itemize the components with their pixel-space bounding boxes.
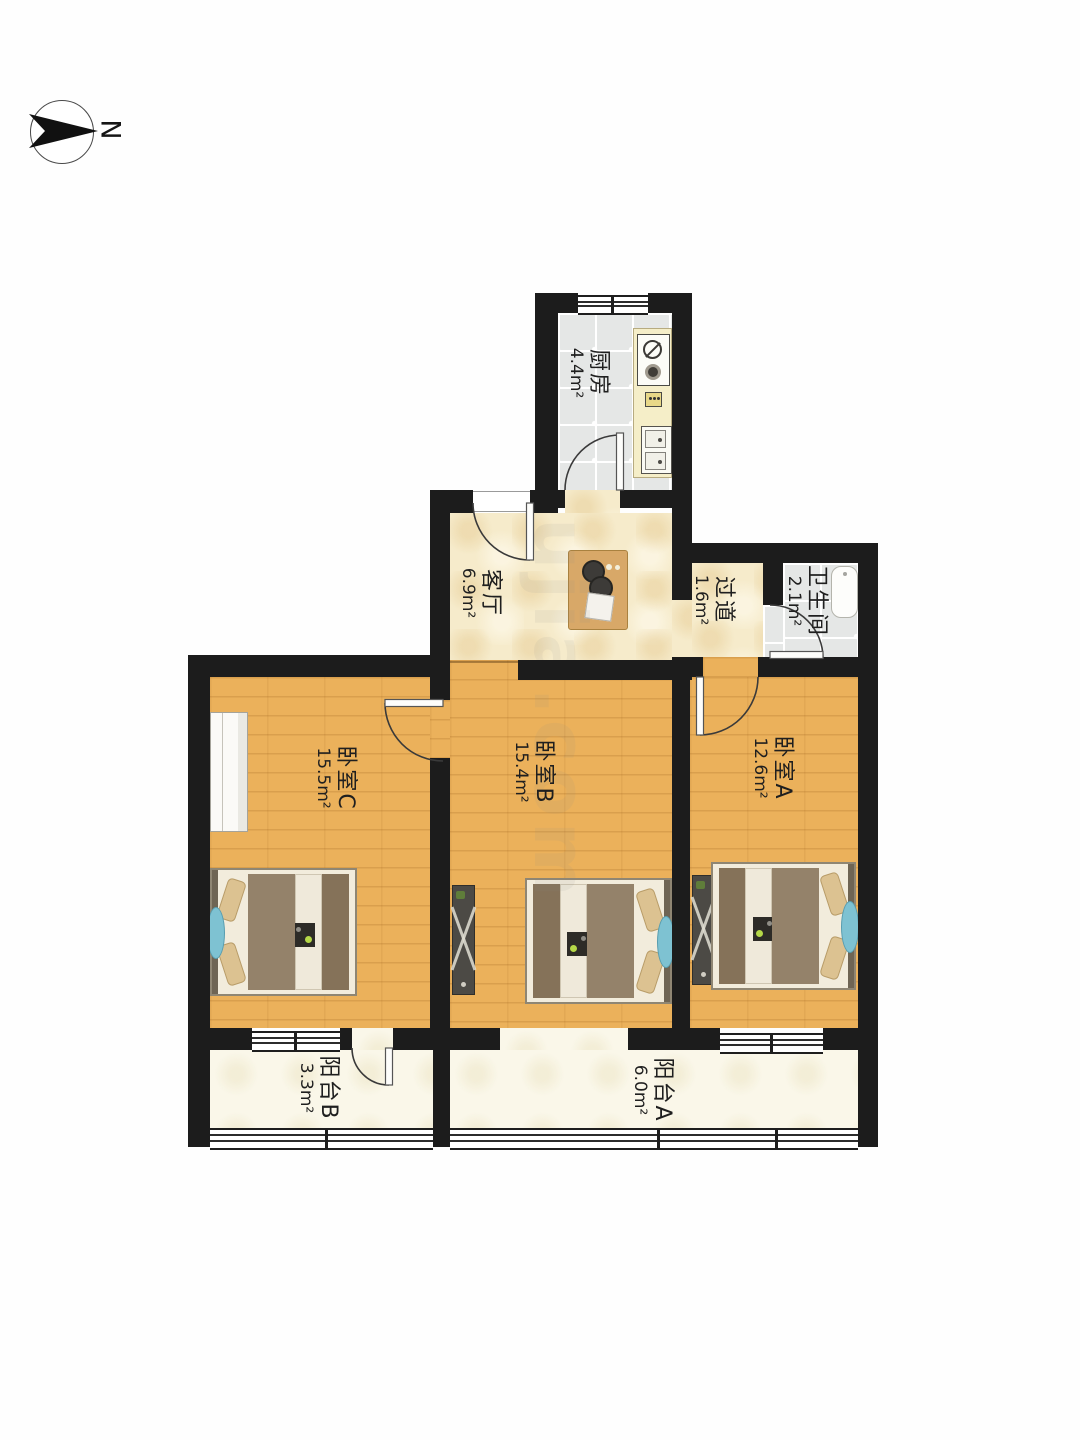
bedroomA-balcony-window (720, 1033, 823, 1054)
compass-icon (30, 100, 94, 164)
wall (340, 1028, 352, 1050)
burner-icon (643, 340, 662, 359)
balconyA-opening-gap (500, 1028, 628, 1050)
balconyB-door-gap (352, 1028, 393, 1050)
compass-north-label: N (95, 119, 126, 139)
wall (692, 543, 878, 563)
wall (188, 655, 210, 1147)
wall (450, 1028, 500, 1050)
bed-bedroomC (210, 868, 357, 996)
wall (672, 293, 692, 600)
wall (210, 1028, 252, 1050)
bed-bedroomA (711, 862, 856, 990)
wall (188, 655, 433, 677)
balconyB-railing-window (210, 1128, 433, 1150)
wall (858, 543, 878, 1147)
burner-icon (645, 364, 661, 380)
wall (430, 758, 450, 1050)
wall (433, 1028, 450, 1147)
bedroomA-door-gap (703, 657, 758, 677)
balconyA-floor (450, 1050, 858, 1128)
wall (535, 293, 578, 313)
stove-icon (637, 334, 670, 386)
wall (430, 492, 450, 700)
floor-plan: ujia.com (0, 0, 1080, 1440)
living-hall-passage-floor (672, 600, 692, 660)
bathroom-door-gap (763, 605, 783, 657)
wall (672, 657, 690, 1050)
balconyB-floor (210, 1050, 433, 1128)
small-appliance-icon (645, 392, 662, 407)
wall (758, 657, 878, 677)
watermark: ujia.com (470, 550, 650, 870)
balconyA-railing-window (450, 1128, 858, 1150)
wall (763, 543, 783, 605)
wardrobe (210, 712, 248, 832)
wall (823, 1028, 858, 1050)
wall (628, 1028, 720, 1050)
kitchen-window (578, 295, 648, 315)
hallway-floor (692, 563, 763, 657)
kitchen-sink-icon (641, 426, 672, 474)
bedroomB-opening-line (450, 661, 518, 663)
tv-stand-bedroomB (452, 885, 475, 995)
kitchen-door-gap (565, 490, 620, 513)
wall (393, 1028, 433, 1050)
wall (530, 490, 558, 513)
entrance-threshold (473, 491, 530, 512)
wall (518, 660, 692, 680)
wall (535, 313, 558, 500)
bedroomC-door-gap (430, 700, 450, 758)
bedroomC-balcony-window (252, 1031, 340, 1052)
wall (620, 490, 672, 508)
bathtub-icon (831, 566, 858, 618)
